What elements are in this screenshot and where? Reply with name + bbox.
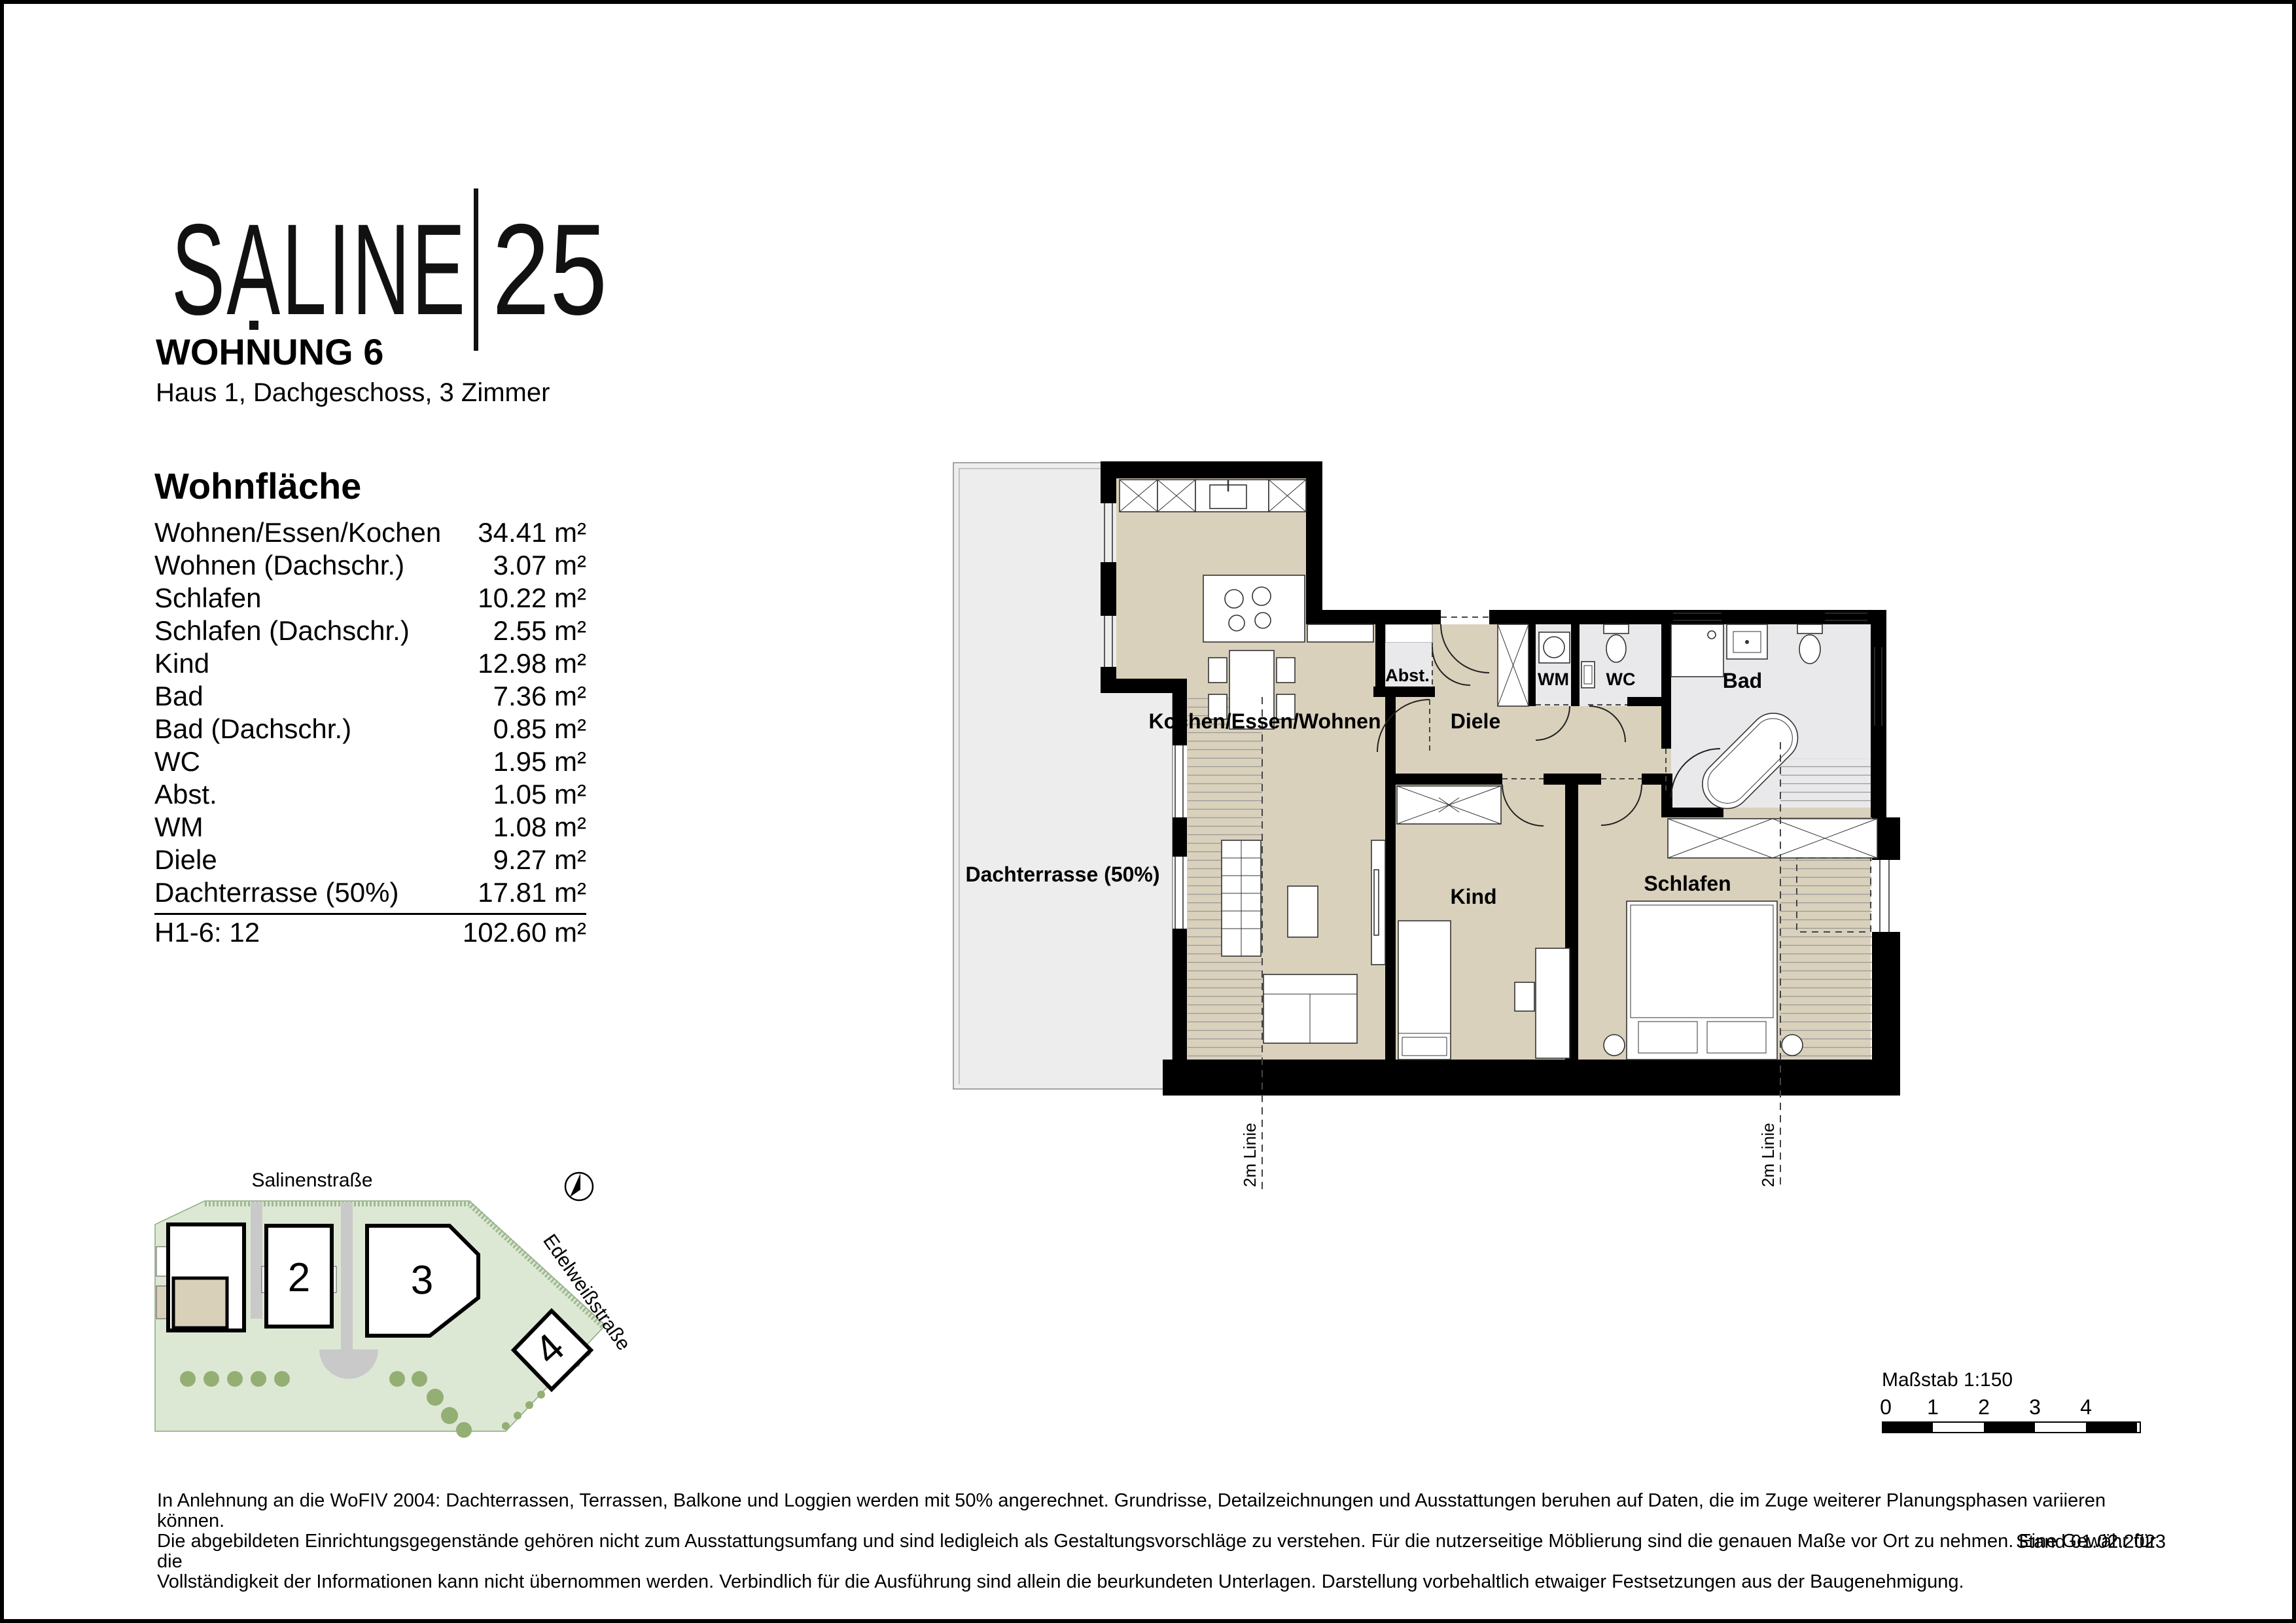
logo-number-text: 25: [492, 188, 607, 351]
row-value: 0.85 m²: [493, 713, 586, 745]
room-label-terrasse: Dachterrasse (50%): [965, 863, 1159, 886]
row-value: 1.05 m²: [493, 778, 586, 811]
two-meter-line-label-right: 2m Linie: [1758, 1123, 1778, 1187]
row-label: Wohnen/Essen/Kochen: [154, 516, 441, 549]
scale-tick: 0: [1880, 1395, 1892, 1419]
area-table: Wohnfläche Wohnen/Essen/Kochen34.41 m² W…: [154, 465, 586, 950]
room-label-wm: WM: [1538, 669, 1569, 689]
table-row: WC1.95 m²: [154, 745, 586, 778]
row-label: Bad: [154, 680, 203, 713]
site-building-1: [156, 1224, 244, 1330]
total-value: 102.60 m²: [463, 915, 586, 950]
table-row: Schlafen (Dachschr.)2.55 m²: [154, 615, 586, 647]
row-value: 1.95 m²: [493, 745, 586, 778]
room-label-abst: Abst.: [1385, 666, 1430, 685]
row-label: Schlafen (Dachschr.): [154, 615, 410, 647]
scale-tick: 3: [2029, 1395, 2041, 1419]
room-label-schlafen: Schlafen: [1644, 872, 1731, 895]
room-label-kochen: Kochen/Essen/Wohnen: [1148, 709, 1381, 733]
row-label: Bad (Dachschr.): [154, 713, 351, 745]
scale-tick: 1: [1927, 1395, 1939, 1419]
row-label: Dachterrasse (50%): [154, 876, 398, 909]
row-value: 9.27 m²: [493, 844, 586, 876]
revision-date: Stand 01.02.2023: [2009, 1531, 2166, 1553]
site-building-2: 2: [262, 1226, 336, 1327]
room-label-kind: Kind: [1450, 885, 1496, 908]
north-arrow-icon: [565, 1173, 593, 1200]
row-label: WM: [154, 811, 203, 844]
building-number: 3: [411, 1258, 433, 1303]
street-label-top: Salinenstraße: [251, 1169, 372, 1191]
table-row: Wohnen (Dachschr.)3.07 m²: [154, 549, 586, 582]
room-label-wc: WC: [1606, 669, 1636, 689]
table-row: Schlafen10.22 m²: [154, 582, 586, 615]
row-label: Kind: [154, 647, 209, 680]
row-label: Diele: [154, 844, 217, 876]
row-value: 12.98 m²: [478, 647, 586, 680]
row-value: 2.55 m²: [493, 615, 586, 647]
total-label: H1-6: 12: [154, 915, 260, 950]
row-value: 7.36 m²: [493, 680, 586, 713]
disclaimer: In Anlehnung an die WoFIV 2004: Dachterr…: [157, 1491, 2172, 1592]
washing-machine: [1539, 632, 1570, 663]
disclaimer-line: Die abgebildeten Einrichtungsgegenstände…: [157, 1531, 2172, 1572]
table-row: Kind12.98 m²: [154, 647, 586, 680]
scale-label: Maßstab 1:150: [1882, 1369, 2144, 1391]
room-label-bad: Bad: [1723, 669, 1762, 692]
row-value: 10.22 m²: [478, 582, 586, 615]
row-value: 17.81 m²: [478, 876, 586, 909]
disclaimer-line: Vollständigkeit der Informationen kann n…: [157, 1572, 2172, 1592]
table-row: WM1.08 m²: [154, 811, 586, 844]
scale-bar: Maßstab 1:150 0 1 2 3 4: [1882, 1369, 2144, 1433]
floorplan: Kochen/Essen/Wohnen Diele Abst. WM WC Ba…: [948, 451, 1903, 1197]
page-title: WOHNUNG 6: [156, 330, 383, 373]
table-total-row: H1-6: 12102.60 m²: [154, 915, 586, 950]
row-value: 3.07 m²: [493, 549, 586, 582]
table-row: Wohnen/Essen/Kochen34.41 m²: [154, 516, 586, 549]
site-plan-drawing: 2 3 4 Salinenstraße Edelweißstraße: [147, 1162, 631, 1443]
row-value: 34.41 m²: [478, 516, 586, 549]
row-value: 1.08 m²: [493, 811, 586, 844]
scale-bar-graphic: [1882, 1421, 2141, 1433]
logo-brand-text: SALINE: [171, 188, 467, 351]
site-plan: 2 3 4 Salinenstraße Edelweißstraße: [147, 1162, 631, 1443]
floorplan-sheet: { "logo": { "brand": "SALINE", "number":…: [0, 0, 2296, 1623]
floorplan-drawing: Kochen/Essen/Wohnen Diele Abst. WM WC Ba…: [948, 451, 1903, 1197]
page-subtitle: Haus 1, Dachgeschoss, 3 Zimmer: [156, 378, 550, 408]
disclaimer-line: In Anlehnung an die WoFIV 2004: Dachterr…: [157, 1491, 2172, 1531]
two-meter-line-label-left: 2m Linie: [1240, 1123, 1260, 1187]
room-label-diele: Diele: [1451, 709, 1500, 733]
scale-tick: 2: [1978, 1395, 1990, 1419]
row-label: Wohnen (Dachschr.): [154, 549, 404, 582]
area-table-heading: Wohnfläche: [154, 465, 586, 507]
row-label: Abst.: [154, 778, 217, 811]
hall-wardrobe: [1498, 624, 1528, 706]
logo-divider: [474, 188, 478, 351]
building-number: 2: [288, 1255, 310, 1300]
scale-tick: 4: [2080, 1395, 2092, 1419]
table-row: Bad7.36 m²: [154, 680, 586, 713]
table-row: Bad (Dachschr.)0.85 m²: [154, 713, 586, 745]
logo: SALINE 25: [171, 188, 669, 351]
row-label: WC: [154, 745, 200, 778]
table-row: Dachterrasse (50%)17.81 m²: [154, 876, 586, 909]
scale-ticks: 0 1 2 3 4: [1882, 1395, 2144, 1421]
row-label: Schlafen: [154, 582, 261, 615]
table-row: Abst.1.05 m²: [154, 778, 586, 811]
table-row: Diele9.27 m²: [154, 844, 586, 876]
logo-a-dot-icon: [249, 321, 258, 330]
